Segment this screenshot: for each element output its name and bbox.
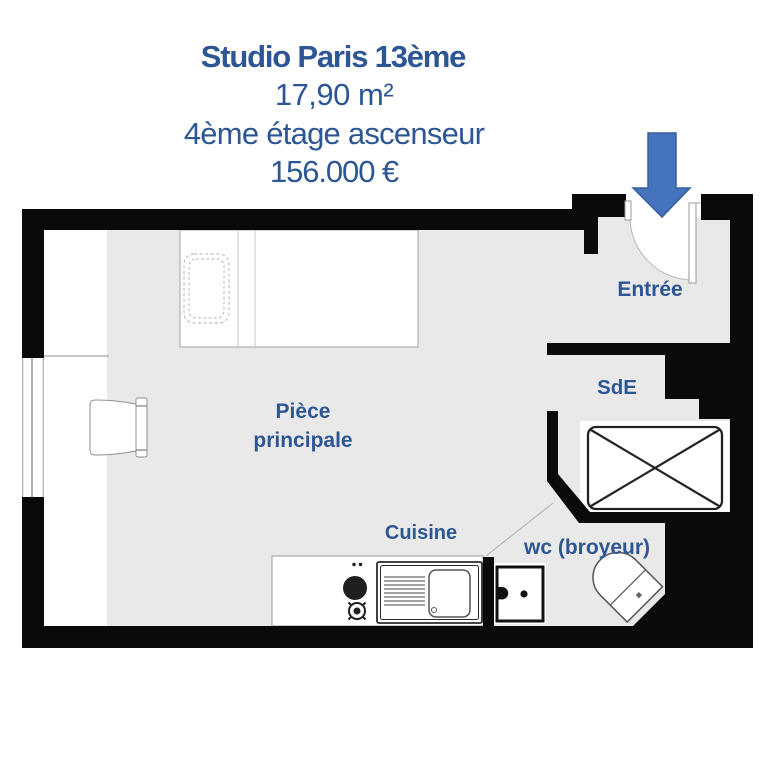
svg-text:4ème étage ascenseur: 4ème étage ascenseur bbox=[184, 116, 485, 151]
svg-text:SdE: SdE bbox=[597, 376, 637, 399]
svg-text:Cuisine: Cuisine bbox=[385, 522, 457, 544]
svg-text:Entrée: Entrée bbox=[617, 278, 682, 301]
svg-text:17,90 m²: 17,90 m² bbox=[275, 77, 394, 112]
svg-text:Pièce: Pièce bbox=[276, 400, 331, 423]
svg-text:Studio Paris 13ème: Studio Paris 13ème bbox=[201, 39, 466, 74]
svg-text:wc (broyeur): wc (broyeur) bbox=[523, 536, 650, 559]
svg-text:156.000 €: 156.000 € bbox=[270, 154, 399, 189]
svg-text:principale: principale bbox=[253, 429, 352, 452]
